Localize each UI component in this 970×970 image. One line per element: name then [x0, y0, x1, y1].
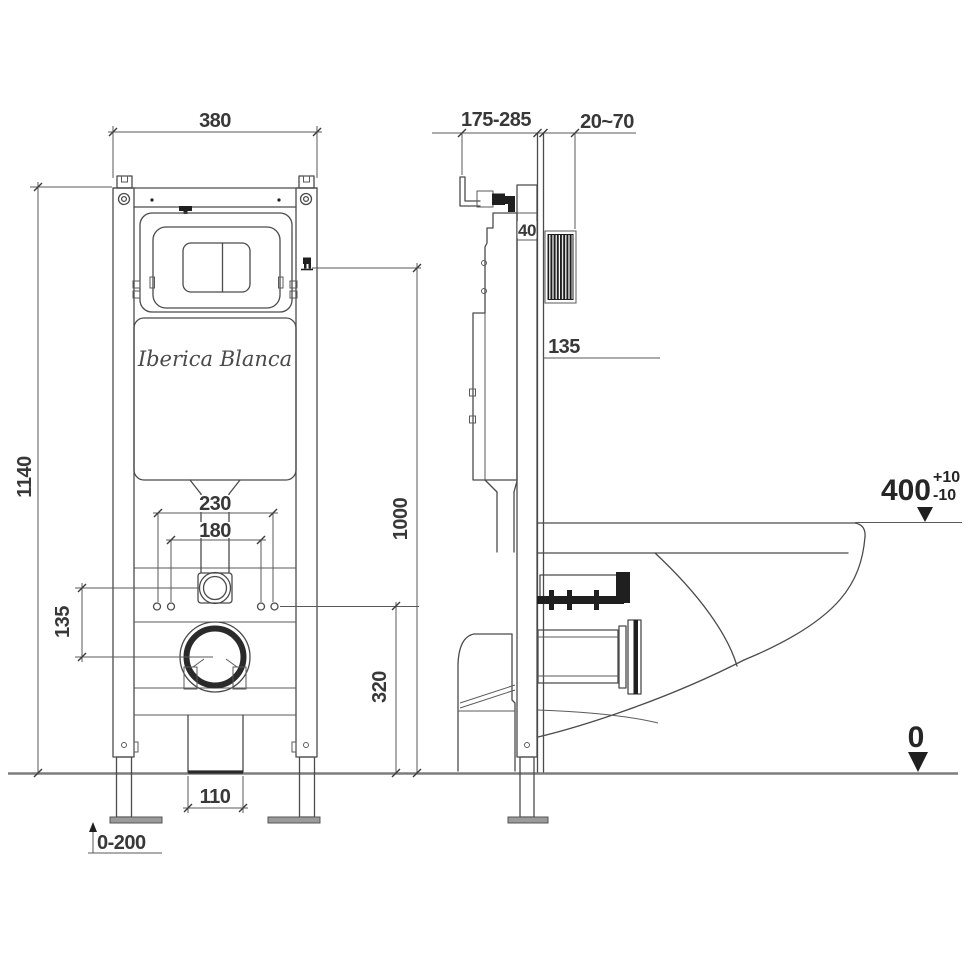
- drawing-canvas: Iberica Blanca: [0, 0, 970, 970]
- installation-drawing: Iberica Blanca: [0, 0, 970, 970]
- water-inlet-fitting: [154, 573, 279, 611]
- dim-frame-height: 1140: [14, 182, 112, 777]
- fixing-rod-assembly: [537, 572, 630, 610]
- svg-text:20~70: 20~70: [580, 111, 634, 133]
- foot-plate: [268, 817, 320, 823]
- brand-logo: Iberica Blanca: [137, 347, 292, 371]
- arrow-up-icon: [89, 822, 97, 832]
- drain-connector-side: [538, 620, 641, 694]
- flush-plate-side: [545, 231, 576, 303]
- side-view: 40: [432, 109, 962, 823]
- screw-icon: [122, 197, 127, 202]
- flush-buttons: [183, 243, 250, 292]
- datum-floor-level: 0: [908, 721, 928, 772]
- water-supply-valve: [460, 177, 515, 212]
- svg-text:135: 135: [548, 336, 580, 358]
- drain-elbow: [458, 634, 515, 771]
- actuator-valve-icon: [301, 258, 313, 270]
- svg-text:40: 40: [518, 221, 536, 240]
- screw-icon: [119, 194, 130, 205]
- svg-text:400: 400: [881, 474, 931, 507]
- svg-text:1140: 1140: [14, 456, 36, 498]
- dim-fixing-height: 320: [280, 602, 419, 777]
- foot-plate: [110, 817, 162, 823]
- dim-bolt-spacing-outer: 230: [153, 493, 278, 602]
- dim-drain-width: 110: [183, 776, 248, 813]
- datum-rim-height: 400 +10 -10: [855, 469, 962, 523]
- foot-plate: [508, 817, 548, 823]
- drain-outlet: [180, 622, 250, 772]
- svg-text:0-200: 0-200: [97, 832, 146, 854]
- svg-text:110: 110: [200, 786, 231, 808]
- svg-text:230: 230: [199, 493, 231, 515]
- svg-text:0: 0: [908, 721, 925, 754]
- svg-text:175-285: 175-285: [461, 109, 531, 131]
- datum-triangle-icon: [908, 752, 928, 772]
- dim-bolt-spacing-inner: 180: [166, 520, 266, 602]
- screw-icon: [304, 197, 309, 202]
- flush-plate-front: [133, 213, 297, 312]
- cistern-side: [470, 213, 518, 552]
- svg-text:180: 180: [199, 520, 231, 542]
- dim-frame-width: 380: [108, 110, 322, 178]
- screw-icon: [301, 194, 312, 205]
- svg-text:1000: 1000: [390, 497, 412, 540]
- svg-text:+10: +10: [933, 469, 960, 486]
- svg-text:380: 380: [199, 110, 231, 132]
- front-view: Iberica Blanca: [14, 110, 421, 854]
- svg-text:135: 135: [52, 606, 74, 638]
- dim-actuator-height: 1000: [312, 263, 421, 777]
- svg-text:-10: -10: [933, 487, 956, 504]
- datum-triangle-icon: [917, 507, 933, 522]
- dim-side-offset: 135: [543, 336, 660, 358]
- dim-foot-adjust: 0-200: [88, 822, 162, 854]
- svg-text:320: 320: [369, 671, 391, 703]
